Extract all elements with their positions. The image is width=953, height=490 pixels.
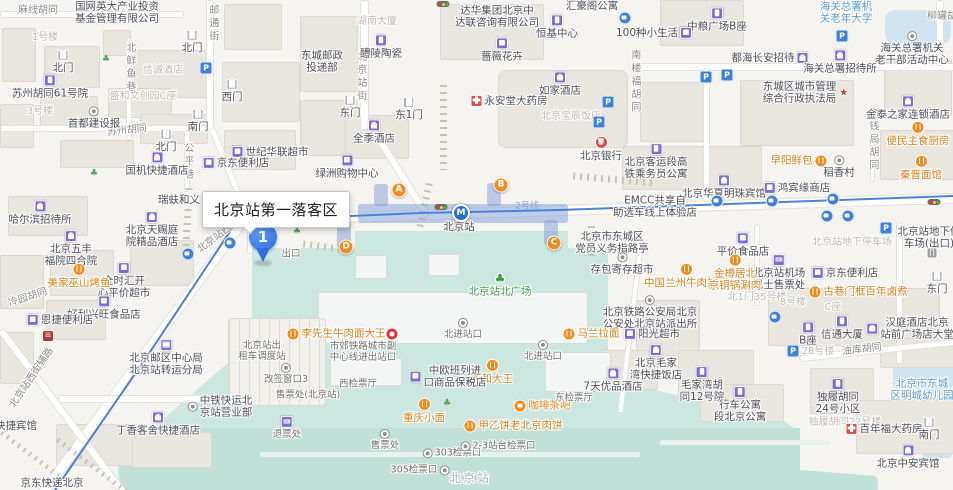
poi-label[interactable]: B座 (799, 321, 817, 346)
road-label: 柳罐胡同 (927, 11, 953, 23)
poi-label[interactable]: 汉庭酒店北京站前广场店大堂 (866, 317, 953, 342)
poi-label[interactable]: 李先生牛肉面大王 (287, 328, 386, 341)
bank-icon (595, 136, 608, 149)
poi-label: 北京站出租车调度站 (238, 340, 286, 362)
poi-label[interactable]: 蔷薇花卉 (481, 37, 523, 62)
subway-entrance-D[interactable]: D (339, 240, 354, 255)
label-text: 中粮广场B座 (687, 20, 747, 32)
ticket-icon (281, 416, 293, 428)
poi-label[interactable]: 东门 (927, 271, 948, 295)
bus-icon[interactable] (224, 237, 237, 250)
hotel-icon (650, 344, 662, 356)
hotel-icon (146, 211, 158, 223)
label-text: 东检票厅 (555, 392, 593, 403)
building-label: 北京站地下停车场 (812, 237, 892, 249)
poi-label[interactable]: 首都建设报 (68, 106, 121, 129)
circ-icon (380, 429, 390, 439)
label-text: 京东快递北京 (21, 477, 84, 489)
label-text: 7天优品酒店 (583, 380, 642, 392)
hotel-icon (902, 444, 914, 456)
bus-icon[interactable] (711, 195, 724, 208)
building-label: 信诚酒店 (143, 65, 183, 77)
ut-icon (680, 263, 693, 276)
building-label: 北1门35号楼 (727, 292, 786, 304)
marker-shadow (254, 260, 272, 266)
label-text: 稻香村 (823, 166, 855, 178)
label-text: 信诚酒店 (143, 65, 183, 77)
label-text: 中铁快运北京站营业部 (200, 395, 253, 420)
poi-label[interactable]: 北京市东城区明城幼儿园 (891, 378, 953, 403)
mail-icon (160, 339, 172, 351)
label-text: 北京邮区中心局北京站转运分局 (129, 352, 203, 377)
label-text: C座 (825, 302, 842, 314)
poi-label[interactable]: 中粮广场B座 (687, 7, 747, 32)
poi-label[interactable]: 西门 (222, 79, 243, 103)
hotel-icon (718, 174, 730, 186)
label-text: 出口 (281, 248, 300, 259)
label-text: 1号楼 (32, 32, 58, 44)
circ-icon (645, 295, 655, 305)
bldg-icon (375, 34, 387, 46)
circ-icon (460, 441, 470, 451)
bus-icon[interactable] (821, 210, 834, 223)
label-text: 麻线胡同 (18, 5, 58, 17)
circ-icon (617, 252, 627, 262)
road-label: 邮通街 (206, 5, 218, 44)
ticket-icon (773, 254, 785, 266)
label-text: EMCC共享自助选车线上体验店 (613, 195, 697, 220)
traffic-icon[interactable] (435, 204, 448, 210)
redcirc-icon[interactable] (386, 328, 399, 341)
poi-label[interactable]: 海关总署机关老年大学 (820, 1, 873, 26)
parking-icon[interactable] (836, 30, 849, 43)
poi-label[interactable]: 中铁快运北京站营业部 (188, 395, 253, 420)
label-text: 北鲜鱼巷 (123, 42, 135, 94)
hotel-icon (834, 49, 846, 61)
label-text: 湖南大厦 (357, 16, 397, 28)
bldg-icon (696, 366, 708, 378)
label-text: 3号楼 (27, 106, 53, 118)
poi-label[interactable]: 恒基中心 (536, 14, 578, 39)
treesm-icon[interactable] (293, 228, 302, 237)
poi-label[interactable]: 中欧班列进口商品保税店 (410, 365, 487, 390)
poi-label[interactable]: 海关总署招待所 (803, 49, 877, 74)
shop-icon (624, 328, 636, 340)
map-canvas[interactable]: 麻线胡同邮通街北鲜鱼巷苏州胡同北京站街公平巷南楼福胡同老钱局胡同柳罐胡同北京站西… (0, 0, 953, 490)
subway-entrance-C[interactable]: C (547, 236, 562, 251)
building-label: 北京站 (449, 471, 491, 485)
poi-label[interactable]: 北京铁路公安局北京公安处北京站派出所 (603, 295, 698, 331)
label-text: 北京站 (449, 471, 491, 485)
label-text: 全季酒店 (353, 132, 395, 144)
label-text: 阳光超市 (638, 328, 680, 340)
poi-label[interactable]: 绿洲购物中心 (316, 154, 379, 179)
label-text: 西门 (222, 91, 243, 103)
shop-icon (680, 27, 692, 39)
label-text: 北京站出租车调度站 (238, 340, 286, 362)
poi-label[interactable]: 甲乙饼老北京肉饼 (464, 420, 563, 433)
label-text: 100种小生活 (616, 27, 678, 39)
label-text: 京东便利店 (217, 157, 270, 169)
label-text: 百年福大药房 (860, 423, 923, 435)
shop-icon (98, 295, 110, 307)
poi-label[interactable]: 达华集团北京中达联咨询有限公司 (455, 5, 539, 30)
label-text: 国机快捷酒店 (126, 164, 189, 176)
road-label: 北鲜鱼巷 (123, 42, 135, 94)
circ-icon (538, 340, 548, 350)
label-text: 独履胡同24号小区 (816, 391, 861, 416)
building-label: 28号楼 (802, 346, 835, 358)
label-text: 28号楼 (802, 346, 835, 358)
label-text: 马兰拉面 (578, 328, 620, 340)
label-text: 快捷宾馆 (0, 420, 37, 432)
shop-icon (27, 314, 39, 326)
poi-label: 2-3站台检票口 (460, 440, 535, 451)
poi-label: 北京站 (443, 221, 475, 233)
bldg-icon (551, 14, 563, 26)
label-text: 哈尔滨招待所 (9, 213, 72, 225)
poi-label[interactable]: 北京邮区中心局北京站转运分局 (129, 339, 203, 377)
ut-icon (73, 263, 86, 276)
bldg-icon (650, 143, 662, 155)
label-text: 北京银行 (580, 150, 622, 162)
gate-icon (161, 129, 172, 140)
label-text: 甲乙饼老北京肉饼 (479, 420, 563, 432)
poi-label[interactable]: 都海长安招待 (732, 52, 809, 64)
label-text: 8号楼 (780, 297, 806, 309)
ut-icon (418, 398, 431, 411)
poi-label[interactable]: 海关总署机关老干部活动中心 (875, 31, 949, 67)
label-text: 早阳鲜包 (771, 155, 813, 167)
poi-label[interactable]: 北京银行 (580, 136, 622, 162)
gate-icon (193, 109, 204, 120)
poi-label[interactable]: 美家巫山烤鱼 (48, 263, 111, 289)
poi-label[interactable]: 信通大厦 (821, 315, 863, 340)
building-label: 8号楼 (780, 297, 806, 309)
label-text: 苏州胡同61号院 (12, 87, 88, 99)
poi-label[interactable]: 国网英大产业投资基金管理有限公司 (75, 1, 159, 26)
gate-icon (345, 95, 356, 106)
shop-icon (341, 154, 353, 166)
shop-icon (118, 262, 130, 274)
treesm-icon[interactable] (102, 56, 111, 65)
gate-icon[interactable] (927, 248, 938, 259)
bldg-icon (836, 315, 848, 327)
hotel-icon (152, 411, 164, 423)
gate-icon (227, 79, 238, 90)
road-label: 南楼福胡同 (628, 50, 640, 115)
shop-icon (812, 267, 824, 279)
gate-icon (58, 50, 69, 61)
bldg-icon (802, 321, 814, 333)
label-text: 市郊铁路城市副中心线进出站口 (330, 341, 397, 363)
gate-icon (404, 97, 415, 108)
gate-icon (187, 30, 198, 41)
poi-label[interactable]: 东门 (340, 95, 361, 119)
label-text: 北京客运段高铁乘务员公寓 (625, 156, 688, 181)
label-text: 醴陵陶瓷 (360, 47, 402, 59)
poi-label: 退票处 (273, 416, 302, 440)
poi-label[interactable]: 哈尔滨招待所 (9, 200, 72, 225)
label-text: 蔷薇花卉 (481, 50, 523, 62)
building-label: 湖南大厦 (357, 16, 397, 28)
label-text: 盛和文创园C座 (110, 91, 177, 103)
ut-icon (809, 286, 822, 299)
poi-label[interactable]: 汇豪阁公寓 (566, 0, 619, 12)
circ-icon (281, 363, 291, 373)
label-text: 恒基中心 (536, 27, 578, 39)
label-text: 瑞蚨和义 (158, 194, 200, 206)
poi-label[interactable]: 北门 (53, 50, 74, 74)
circ-icon (188, 402, 198, 412)
poi-label[interactable]: 全季酒店 (353, 119, 395, 144)
poi-label[interactable]: 独履胡同24号小区 (816, 378, 861, 416)
label-text: 秦晋面馆 (900, 169, 942, 181)
poi-label[interactable]: 古巷门框百年卤煮 (809, 286, 908, 299)
poi-label: 改签窗口3 (264, 363, 308, 385)
shop-icon (496, 37, 508, 49)
poi-label[interactable]: 南门 (188, 109, 209, 133)
bus-icon[interactable] (769, 311, 782, 324)
gate-icon (932, 271, 943, 282)
poi-label: 东检票厅 (555, 392, 593, 403)
poi-label[interactable]: 东城区城市管理综合行政执法局 (763, 81, 850, 106)
poi-label[interactable]: EMCC共享自助选车线上体验店 (613, 195, 697, 220)
bus-icon[interactable] (842, 210, 855, 223)
label-text: 绿洲购物中心 (316, 167, 379, 179)
label-text: 东城邮政投递部 (301, 50, 343, 75)
circ-icon (439, 465, 449, 475)
label-text: 北门 (182, 42, 203, 54)
coffee-icon (514, 400, 527, 413)
poi-label[interactable]: 金泰之家连锁酒店 (866, 95, 950, 120)
poi-label[interactable]: 北京中安宾馆 (877, 444, 940, 469)
parking-icon[interactable] (700, 71, 713, 84)
label-text: 海关总署机关老干部活动中心 (875, 42, 949, 67)
poi-label[interactable]: 100种小生活 (616, 27, 692, 39)
label-text: 退票处 (273, 429, 302, 440)
shop-icon (203, 157, 215, 169)
poi-label: 售票处(北京站) (276, 389, 340, 400)
circ-icon (458, 318, 468, 328)
poi-label[interactable]: 北京站北广场 (469, 272, 532, 297)
poi-label[interactable]: 北京站地下停车场(出口) (898, 226, 953, 251)
metro-icon[interactable] (452, 204, 470, 222)
label-text: 东门 (927, 283, 948, 295)
bldg-icon (734, 386, 746, 398)
hotel-icon (34, 200, 46, 212)
poi-label[interactable]: 北京天赐庭院精品酒店 (126, 211, 179, 249)
label-text: 东城区城市管理综合行政执法局 (763, 81, 837, 106)
poi-label[interactable]: 马兰拉面 (563, 328, 620, 341)
poi-label[interactable]: 北门 (156, 129, 177, 153)
label-text: 北京站地下停车场(出口) (898, 226, 953, 251)
label-text: 北进站口 (444, 329, 482, 340)
label-text: 2-3站台检票口 (472, 440, 535, 451)
hotel-icon (902, 95, 914, 107)
label-text: 金泰之家连锁酒店 (866, 108, 950, 120)
poi-label[interactable]: 鸿宾缘商店 (764, 182, 831, 194)
treesm-icon[interactable] (90, 170, 99, 179)
bldg-icon (832, 378, 844, 390)
shop-icon (410, 371, 422, 383)
label-text: 售票处(北京站) (276, 389, 340, 400)
bus-icon[interactable] (766, 195, 779, 208)
poi-label: 北进站口 (524, 340, 562, 362)
poi-label[interactable]: 百年福大药房 (846, 423, 923, 435)
label-text: 北京天赐庭院精品酒店 (126, 224, 179, 249)
poi-label: 305检票口 (391, 464, 450, 475)
circ-icon (907, 31, 917, 41)
callout-title: 北京站第一落客区 (214, 201, 338, 219)
label-text: 永安堂大药房 (485, 95, 548, 107)
label-text: 2号线 (515, 202, 539, 213)
label-text: 北京市东城区明城幼儿园 (891, 378, 953, 403)
ut-icon (912, 121, 925, 134)
poi-label[interactable]: 国机快捷酒店 (126, 151, 189, 176)
label-text: 南门 (188, 121, 209, 133)
label-text: 海关总署机关老年大学 (820, 1, 873, 26)
poi-label[interactable]: 苏州胡同61号院 (12, 74, 88, 99)
label-text: 恩捷便利店 (41, 314, 94, 326)
label-text: 邮通街 (206, 5, 218, 44)
parking-icon[interactable] (721, 69, 734, 82)
road-label: 麻线胡同 (18, 5, 58, 17)
label-text: 北京中安宾馆 (877, 457, 940, 469)
poi-label[interactable]: 南门 (919, 417, 940, 441)
poi-label[interactable]: 东1门 (395, 97, 423, 121)
hotel-icon (554, 71, 566, 83)
bus-icon[interactable] (827, 193, 840, 206)
ut-icon (563, 328, 576, 341)
bldg-icon (711, 7, 723, 19)
poi-label[interactable]: 快捷宾馆 (0, 420, 37, 432)
poi-label: 售票处 (371, 429, 400, 451)
label-text: 北门 (156, 141, 177, 153)
label-text: 汉庭酒店北京站前广场店大堂 (880, 317, 953, 342)
label-text: 丁香客舍快捷酒店 (116, 424, 200, 436)
poi-label[interactable]: 京东便利店 (812, 267, 879, 279)
hotel-icon (65, 230, 77, 242)
label-text: 达华集团北京中达联咨询有限公司 (455, 5, 539, 30)
poi-label[interactable]: 北门 (182, 30, 203, 54)
label-text: 京东便利店 (826, 267, 879, 279)
poi-label[interactable]: 如家酒店 (539, 71, 581, 96)
hotel-icon (866, 323, 878, 335)
parking-icon[interactable] (200, 62, 213, 75)
poi-label[interactable]: 恩捷便利店 (27, 314, 94, 326)
poi-label[interactable]: 秦晋面馆 (900, 155, 942, 181)
traffic-icon[interactable] (928, 199, 941, 205)
poi-label[interactable]: 京东快递北京 (21, 477, 84, 489)
label-text: 美家巫山烤鱼 (48, 277, 111, 289)
label-text: 信通大厦 (821, 328, 863, 340)
subway-entrance-B[interactable]: B (494, 178, 509, 193)
shop-icon (764, 182, 776, 194)
poi-label[interactable]: 早阳鲜包 (771, 155, 828, 168)
parking-icon[interactable] (602, 96, 615, 109)
label-text: 售票处 (371, 440, 400, 451)
label-text: 北1门35号楼 (727, 292, 786, 304)
ut-icon (287, 328, 300, 341)
gate-icon (924, 417, 935, 428)
building-label: 盛和文创园C座 (110, 91, 177, 103)
label-text: 北门 (53, 62, 74, 74)
building-label: 3号楼 (27, 106, 53, 118)
bus-icon[interactable] (182, 248, 195, 261)
star-icon (838, 88, 849, 99)
label-text: 柳罐胡同 (927, 11, 953, 23)
traffic-icon[interactable] (437, 1, 450, 7)
label-text: 海关总署招待所 (803, 62, 877, 74)
label-text: 便民主食厨房 (887, 135, 950, 147)
label-text: 西检票厅 (339, 378, 377, 389)
ut-icon (729, 254, 742, 267)
label-text: 鸿宾缘商店 (778, 182, 831, 194)
poi-label[interactable]: 便民主食厨房 (887, 121, 950, 147)
subway-entrance-A[interactable]: A (392, 183, 407, 198)
label-text: 行车公寓段北京公寓 (714, 399, 767, 424)
ut-icon (486, 359, 499, 372)
circ-icon (423, 448, 433, 458)
label-text: 北京站 (443, 221, 475, 233)
label-text: 改签窗口3 (264, 374, 308, 385)
poi-label[interactable]: 瑞蚨和义 (158, 194, 200, 206)
label-text: 北京站北广场 (469, 285, 532, 297)
poi-label[interactable]: 北京客运段高铁乘务员公寓 (625, 143, 688, 181)
poi-label[interactable]: 稻香村 (823, 155, 855, 178)
shop-icon (737, 232, 749, 244)
label-text: 重庆小面 (403, 412, 445, 424)
ut-icon (915, 155, 928, 168)
building-label: 1号楼 (32, 32, 58, 44)
label-text: 首都建设报 (68, 117, 121, 129)
poi-label[interactable]: 阳光超市 (624, 328, 680, 340)
bus-icon[interactable] (619, 12, 632, 25)
poi-label[interactable]: 京东便利店 (203, 157, 270, 169)
bldg-icon (44, 74, 56, 86)
pharm-icon (846, 423, 858, 435)
poi-label[interactable]: 金樽居北京铜锅涮肉 (709, 254, 762, 293)
parking-icon[interactable] (880, 222, 893, 235)
label-text: 都海长安招待 (732, 52, 795, 64)
poi-label: 西检票厅 (339, 378, 377, 389)
label-text: 305检票口 (391, 464, 438, 475)
poi-label[interactable]: 永安堂大药房 (471, 95, 548, 107)
label-text: 中欧班列进口商品保税店 (424, 365, 487, 390)
circ-icon (89, 106, 99, 116)
taxi-icon[interactable] (42, 330, 54, 342)
label-text: 李先生牛肉面大王 (302, 328, 386, 340)
poi-label[interactable]: 重庆小面 (403, 398, 445, 424)
label-text: 金樽居北京铜锅涮肉 (709, 268, 762, 293)
label-text: 南楼福胡同 (628, 50, 640, 115)
pharm-icon (471, 95, 483, 107)
poi-label[interactable]: 东城邮政投递部 (301, 50, 343, 75)
label-text: 东门 (340, 107, 361, 119)
poi-label[interactable]: 行车公寓段北京公寓 (714, 386, 767, 424)
treesm-icon[interactable] (443, 400, 452, 409)
circ-icon (834, 155, 844, 165)
label-text: 古巷门框百年卤煮 (824, 286, 908, 298)
poi-label[interactable]: 醴陵陶瓷 (360, 34, 402, 59)
poi-label[interactable]: 7天优品酒店 (583, 367, 642, 392)
parking-icon[interactable] (593, 116, 606, 129)
search-result-callout[interactable]: 北京站第一落客区 (202, 191, 350, 228)
poi-label: 出口 (281, 248, 300, 259)
label-text: B座 (799, 334, 817, 346)
parking-icon[interactable] (787, 345, 800, 358)
